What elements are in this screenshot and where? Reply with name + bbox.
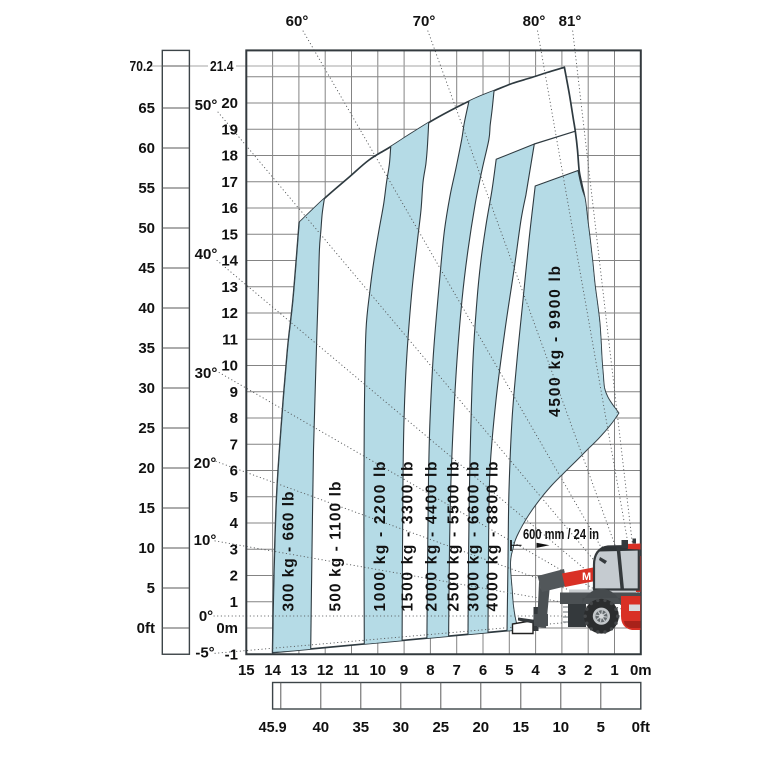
svg-text:8: 8 <box>230 410 238 427</box>
svg-text:60°: 60° <box>286 13 309 30</box>
svg-text:6: 6 <box>479 662 487 679</box>
svg-text:81°: 81° <box>559 13 582 30</box>
svg-text:65: 65 <box>138 100 155 117</box>
svg-text:2: 2 <box>230 568 238 585</box>
svg-text:20°: 20° <box>194 455 217 472</box>
svg-text:5: 5 <box>147 580 155 597</box>
svg-text:8: 8 <box>426 662 434 679</box>
svg-text:3: 3 <box>230 542 238 559</box>
svg-text:12: 12 <box>221 305 238 322</box>
svg-text:10: 10 <box>221 358 238 375</box>
svg-text:500 kg - 1100 lb: 500 kg - 1100 lb <box>328 482 345 612</box>
svg-text:0m: 0m <box>630 662 652 679</box>
svg-text:50°: 50° <box>195 97 218 114</box>
svg-text:0ft: 0ft <box>137 620 155 637</box>
svg-text:17: 17 <box>221 174 238 191</box>
svg-text:4: 4 <box>230 515 239 532</box>
svg-text:12: 12 <box>317 662 334 679</box>
svg-text:15: 15 <box>221 226 238 243</box>
svg-text:1: 1 <box>230 594 238 611</box>
svg-text:15: 15 <box>512 719 529 736</box>
svg-text:45: 45 <box>138 260 155 277</box>
svg-text:13: 13 <box>221 279 238 296</box>
svg-text:0°: 0° <box>199 608 213 625</box>
svg-text:10°: 10° <box>194 532 217 549</box>
svg-text:60: 60 <box>138 140 155 157</box>
svg-text:19: 19 <box>221 121 238 138</box>
svg-text:20: 20 <box>138 460 155 477</box>
svg-text:-5°: -5° <box>195 645 214 662</box>
svg-text:4: 4 <box>531 662 540 679</box>
svg-text:50: 50 <box>138 220 155 237</box>
svg-text:18: 18 <box>221 148 238 165</box>
svg-text:14: 14 <box>264 662 281 679</box>
svg-text:16: 16 <box>221 200 238 217</box>
svg-text:30°: 30° <box>195 365 218 382</box>
svg-text:14: 14 <box>221 253 238 270</box>
svg-text:30: 30 <box>392 719 409 736</box>
svg-text:25: 25 <box>138 420 155 437</box>
svg-text:11: 11 <box>344 662 360 679</box>
svg-text:40: 40 <box>138 300 155 317</box>
svg-text:5: 5 <box>597 719 605 736</box>
svg-text:M: M <box>582 571 591 583</box>
svg-text:5: 5 <box>505 662 513 679</box>
svg-text:20: 20 <box>221 95 238 112</box>
svg-text:300 kg - 660 lb: 300 kg - 660 lb <box>281 492 298 612</box>
svg-text:0m: 0m <box>216 620 238 637</box>
svg-text:1: 1 <box>610 662 618 679</box>
svg-text:13: 13 <box>291 662 308 679</box>
svg-text:10: 10 <box>369 662 386 679</box>
svg-text:9: 9 <box>400 662 408 679</box>
svg-text:6: 6 <box>230 463 238 480</box>
svg-text:0ft: 0ft <box>632 719 650 736</box>
svg-text:7: 7 <box>453 662 461 679</box>
svg-text:10: 10 <box>552 719 569 736</box>
svg-text:35: 35 <box>138 340 155 357</box>
svg-text:21.4: 21.4 <box>210 58 234 75</box>
svg-text:600 mm / 24 in: 600 mm / 24 in <box>523 527 599 543</box>
svg-text:9: 9 <box>230 384 238 401</box>
svg-text:5: 5 <box>230 489 238 506</box>
svg-text:3: 3 <box>558 662 566 679</box>
svg-text:7: 7 <box>230 436 238 453</box>
svg-text:15: 15 <box>238 662 255 679</box>
svg-text:70°: 70° <box>413 13 436 30</box>
svg-text:25: 25 <box>432 719 449 736</box>
svg-text:30: 30 <box>138 380 155 397</box>
svg-text:45.9: 45.9 <box>259 719 287 736</box>
svg-text:40°: 40° <box>195 246 218 263</box>
svg-text:70.2: 70.2 <box>130 58 154 75</box>
svg-text:35: 35 <box>352 719 369 736</box>
svg-text:10: 10 <box>138 540 155 557</box>
svg-text:55: 55 <box>138 180 155 197</box>
svg-text:40: 40 <box>312 719 329 736</box>
svg-text:80°: 80° <box>523 13 546 30</box>
svg-text:2: 2 <box>584 662 592 679</box>
svg-text:11: 11 <box>222 331 238 348</box>
svg-text:20: 20 <box>472 719 489 736</box>
svg-text:-1: -1 <box>225 647 238 664</box>
svg-text:15: 15 <box>138 500 155 517</box>
